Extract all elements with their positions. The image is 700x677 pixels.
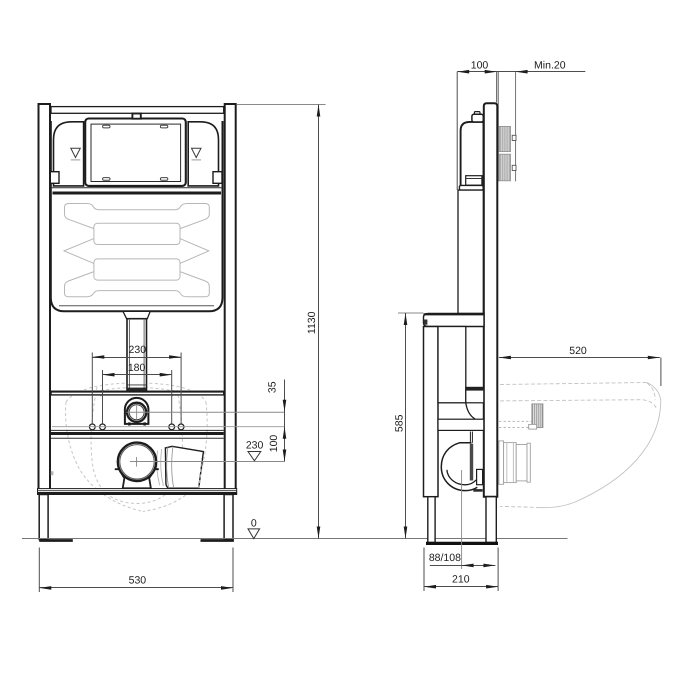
svg-text:230: 230 (246, 440, 264, 452)
svg-text:1130: 1130 (306, 311, 318, 334)
svg-text:210: 210 (452, 574, 470, 586)
svg-text:0: 0 (251, 518, 257, 530)
svg-text:Min.20: Min.20 (534, 59, 566, 71)
svg-text:530: 530 (129, 575, 147, 587)
svg-text:88/108: 88/108 (429, 552, 461, 564)
svg-text:230: 230 (129, 344, 147, 356)
svg-text:520: 520 (569, 345, 587, 357)
svg-text:35: 35 (267, 381, 279, 393)
svg-text:585: 585 (394, 414, 406, 432)
svg-text:100: 100 (471, 59, 489, 71)
svg-text:180: 180 (128, 362, 146, 374)
svg-text:100: 100 (268, 435, 280, 453)
